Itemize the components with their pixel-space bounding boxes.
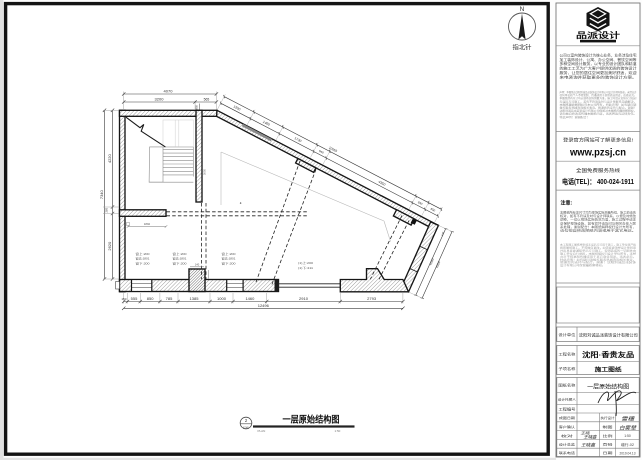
svg-text:成图日期: 成图日期 <box>559 415 575 420</box>
svg-text:多种空间设计服务，以专业的设计团队和精湛: 多种空间设计服务，以专业的设计团队和精湛 <box>560 61 638 66</box>
svg-text:285: 285 <box>104 207 108 212</box>
svg-text:4220: 4220 <box>107 153 112 163</box>
svg-text:565: 565 <box>204 97 210 101</box>
svg-text:(1)下:411: (1)下:411 <box>298 266 314 270</box>
svg-text:850: 850 <box>147 296 154 301</box>
svg-text:日期: 日期 <box>603 450 613 455</box>
svg-text:沈阳刘诚品派装饰设计有限公司: 沈阳刘诚品派装饰设计有限公司 <box>579 331 638 338</box>
svg-text:1:50: 1:50 <box>624 434 631 438</box>
svg-text:页码: 页码 <box>603 442 613 447</box>
svg-text:1460: 1460 <box>245 296 255 301</box>
svg-text:窗上:200: 窗上:200 <box>222 252 237 256</box>
svg-text:窗上:200: 窗上:200 <box>173 252 188 256</box>
svg-text:请勾擅自修改图纸内容或用于其它用途。: 请勾擅自修改图纸内容或用于其它用途。 <box>560 229 636 233</box>
svg-text:执行设计: 执行设计 <box>601 415 615 420</box>
svg-text:一层原始结构图: 一层原始结构图 <box>283 414 340 425</box>
svg-text:登录官方网站可了解更多信息!: 登录官方网站可了解更多信息! <box>563 137 633 144</box>
svg-text:设计单位: 设计单位 <box>558 332 576 337</box>
svg-text:联系电话: 联系电话 <box>559 450 575 455</box>
svg-text:特此声明！谢谢配合！: 特此声明！谢谢配合！ <box>560 115 590 119</box>
svg-text:3200: 3200 <box>155 96 165 101</box>
svg-text:4070: 4070 <box>164 88 174 93</box>
svg-text:客户确认: 客户确认 <box>559 424 575 429</box>
svg-text:白雾楚: 白雾楚 <box>619 424 637 431</box>
svg-text:来电咨询并获取更多的装饰设计方案。: 来电咨询并获取更多的装饰设计方案。 <box>560 74 637 79</box>
svg-text:施工图纸: 施工图纸 <box>595 365 623 373</box>
svg-text:王晓嘉: 王晓嘉 <box>584 434 598 439</box>
svg-text:窗下:200: 窗下:200 <box>136 261 151 265</box>
svg-text:工程名称: 工程名称 <box>558 351 576 356</box>
svg-text:图纸名称: 图纸名称 <box>558 383 576 388</box>
svg-text:(1)上:200: (1)上:200 <box>298 261 314 265</box>
svg-text:校对: 校对 <box>561 433 573 438</box>
svg-text:指北针: 指北针 <box>513 44 532 52</box>
svg-text:王晓嘉: 王晓嘉 <box>581 442 596 447</box>
svg-text:PLAN: PLAN <box>258 429 266 433</box>
svg-text:子项名称: 子项名称 <box>558 366 576 371</box>
svg-text:工程编号: 工程编号 <box>558 407 575 412</box>
svg-text:窗高:1801: 窗高:1801 <box>222 257 237 261</box>
svg-text:公司以室内装饰设计为核心业务，业务涉及住宅: 公司以室内装饰设计为核心业务，业务涉及住宅 <box>560 53 638 58</box>
svg-text:设计托图人: 设计托图人 <box>558 396 576 401</box>
svg-text:555: 555 <box>131 296 138 301</box>
svg-text:雪穗: 雪穗 <box>621 415 635 422</box>
svg-text:7340: 7340 <box>99 189 104 199</box>
svg-text:1:50: 1:50 <box>335 429 341 433</box>
svg-text:150: 150 <box>121 297 126 301</box>
svg-text:窗下:200: 窗下:200 <box>222 261 237 265</box>
svg-text:12496: 12496 <box>258 303 270 308</box>
svg-text:窗上:200: 窗上:200 <box>136 252 151 256</box>
svg-text:电话(TEL)： 400-024-1911: 电话(TEL)： 400-024-1911 <box>562 177 634 186</box>
svg-text:制图: 制图 <box>603 424 613 429</box>
svg-text:比例: 比例 <box>603 433 613 438</box>
svg-text:www.pzsj.cn: www.pzsj.cn <box>569 148 626 159</box>
svg-text:1385: 1385 <box>190 296 200 301</box>
svg-text:2620: 2620 <box>107 241 112 251</box>
svg-text:785: 785 <box>166 296 173 301</box>
svg-text:140: 140 <box>195 262 200 266</box>
svg-text:2910: 2910 <box>299 296 309 301</box>
svg-text:设计有限公司保留最终解释权。: 设计有限公司保留最终解释权。 <box>560 263 605 267</box>
svg-text:1892: 1892 <box>144 222 151 226</box>
svg-text:窗下:200: 窗下:200 <box>173 261 188 265</box>
svg-text:2793: 2793 <box>367 296 377 301</box>
svg-text:注意:: 注意: <box>561 200 573 207</box>
svg-text:增行-02: 增行-02 <box>621 442 634 447</box>
svg-text:N: N <box>520 6 525 13</box>
svg-text:2019.04.13: 2019.04.13 <box>620 451 636 455</box>
svg-text:全国免费服务热线: 全国免费服务热线 <box>576 167 620 174</box>
svg-text:沈阳·香贵友品: 沈阳·香贵友品 <box>582 350 634 359</box>
svg-text:设计总监: 设计总监 <box>559 442 575 447</box>
svg-text:窗高:1801: 窗高:1801 <box>136 257 151 261</box>
svg-text:805: 805 <box>195 105 199 110</box>
svg-text:1000: 1000 <box>217 296 227 301</box>
svg-text:3050: 3050 <box>202 168 206 175</box>
svg-text:品派设计: 品派设计 <box>576 30 620 40</box>
svg-text:一层原始结构图: 一层原始结构图 <box>587 382 629 390</box>
svg-text:加工装饰设计、公寓、办公空间、餐饮空间等: 加工装饰设计、公寓、办公空间、餐饮空间等 <box>560 57 638 62</box>
svg-text:服务，让您的居住空间更加美好舒适，欢迎: 服务，让您的居住空间更加美好舒适，欢迎 <box>560 70 638 75</box>
svg-text:窗高:1801: 窗高:1801 <box>173 257 188 261</box>
svg-text:的施工工艺为广大客户提供优质的装饰设计: 的施工工艺为广大客户提供优质的装饰设计 <box>560 66 638 71</box>
